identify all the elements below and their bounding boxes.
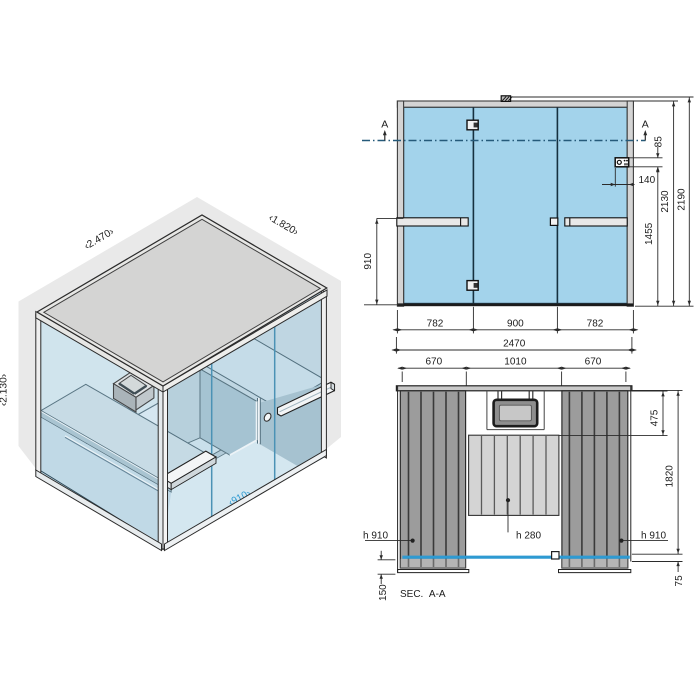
svg-text:SEC. A-A: SEC. A-A — [400, 589, 446, 600]
svg-text:2190: 2190 — [677, 188, 688, 211]
svg-text:475: 475 — [650, 409, 661, 426]
svg-text:150: 150 — [378, 584, 389, 601]
svg-text:A: A — [381, 119, 388, 131]
svg-text:140: 140 — [638, 175, 655, 186]
svg-text:85: 85 — [653, 136, 664, 148]
svg-text:2130: 2130 — [660, 190, 671, 213]
svg-text:1010: 1010 — [504, 357, 527, 368]
svg-text:A: A — [642, 119, 649, 131]
svg-text:1455: 1455 — [644, 222, 655, 245]
svg-text:1820: 1820 — [664, 465, 675, 488]
svg-text:782: 782 — [427, 318, 444, 329]
svg-text:h 280: h 280 — [516, 530, 541, 541]
svg-text:75: 75 — [674, 575, 685, 587]
svg-text:670: 670 — [425, 357, 442, 368]
svg-text:2470: 2470 — [503, 338, 526, 349]
svg-text:h 910: h 910 — [363, 530, 388, 541]
svg-text:900: 900 — [507, 318, 524, 329]
svg-text:670: 670 — [585, 357, 602, 368]
svg-text:h 910: h 910 — [641, 530, 666, 541]
svg-text:910: 910 — [363, 253, 374, 270]
svg-text:‹1.820›: ‹1.820› — [267, 212, 300, 238]
svg-text:‹2.130›: ‹2.130› — [0, 374, 10, 406]
svg-text:782: 782 — [587, 318, 604, 329]
